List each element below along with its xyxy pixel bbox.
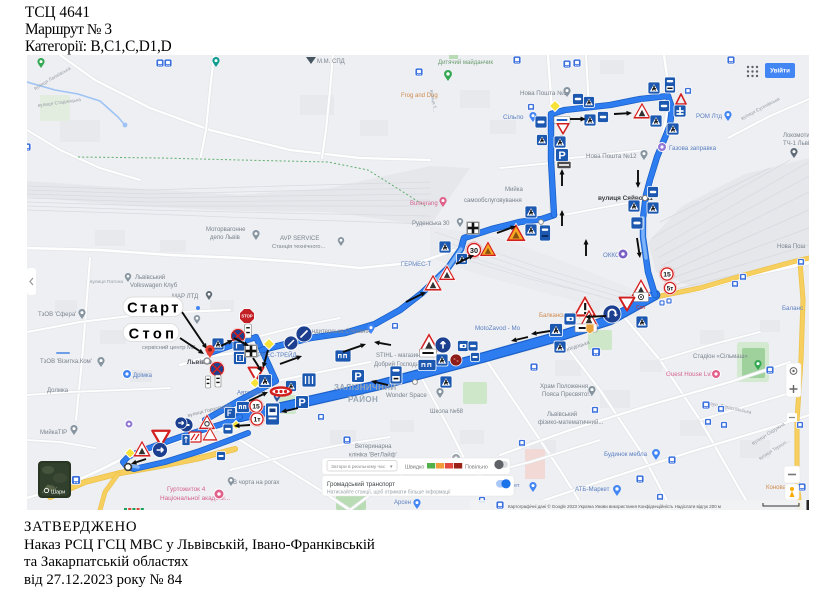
- svg-text:клініка 'ВетЛайф': клініка 'ВетЛайф': [349, 452, 397, 459]
- svg-text:Нова Пошта №12: Нова Пошта №12: [586, 153, 637, 160]
- svg-text:Громадський транспорт: Громадський транспорт: [327, 481, 395, 488]
- svg-text:Гуртожиток 4: Гуртожиток 4: [167, 486, 206, 493]
- svg-text:Стадіон «Сільмаш»: Стадіон «Сільмаш»: [693, 354, 748, 360]
- svg-text:STIHL - магазин: STIHL - магазин: [376, 353, 420, 359]
- svg-text:P: P: [298, 397, 305, 409]
- svg-text:5т: 5т: [667, 286, 674, 293]
- svg-text:Увійти: Увійти: [770, 68, 790, 75]
- svg-text:30: 30: [470, 246, 478, 255]
- svg-text:сервісний центр МВ: сервісний центр МВ: [142, 344, 196, 351]
- svg-text:РОМ Лтд: РОМ Лтд: [696, 113, 722, 120]
- svg-text:ТзОВ 'Візитка.Ком': ТзОВ 'Візитка.Ком': [40, 359, 92, 365]
- svg-text:Мийка: Мийка: [505, 186, 523, 193]
- svg-text:Моторвагонне: Моторвагонне: [206, 227, 246, 233]
- svg-text:Руденська 30: Руденська 30: [412, 221, 450, 227]
- svg-text:Газова заправка: Газова заправка: [669, 145, 717, 152]
- svg-text:Храм Положення: Храм Положення: [540, 384, 588, 390]
- svg-text:Львівський: Львівський: [135, 274, 165, 281]
- svg-text:В чорта на рогах: В чорта на рогах: [233, 480, 279, 486]
- svg-text:Соп: Соп: [636, 305, 645, 311]
- svg-text:Швидко: Швидко: [405, 465, 424, 471]
- svg-text:Картографічні дані © Google 20: Картографічні дані © Google 2023 Україна…: [508, 504, 721, 509]
- svg-text:самообслуговування: самообслуговування: [464, 198, 522, 204]
- svg-text:Старт: Старт: [127, 301, 181, 317]
- svg-text:P: P: [354, 371, 361, 383]
- svg-text:Пояса Пресвято!..: Пояса Пресвято!..: [542, 392, 593, 398]
- svg-text:ТЧ-1 Льві: ТЧ-1 Льві: [783, 141, 809, 147]
- svg-text:МийкаТІР: МийкаТІР: [40, 429, 67, 436]
- svg-text:Долмка: Долмка: [47, 388, 69, 394]
- svg-text:депо Львів: депо Львів: [210, 235, 240, 241]
- svg-text:Будинок мебла: Будинок мебла: [604, 451, 648, 458]
- svg-text:Дитячий майданчик: Дитячий майданчик: [438, 59, 493, 66]
- svg-text:М.М. СПД: М.М. СПД: [317, 59, 345, 65]
- svg-text:РАЙОН: РАЙОН: [348, 395, 378, 404]
- svg-text:Ветеринарна: Ветеринарна: [355, 444, 392, 450]
- svg-text:Натискайте станції, щоб отрима: Натискайте станції, щоб отримати більше …: [327, 489, 451, 496]
- svg-text:ТзОВ 'Сфера': ТзОВ 'Сфера': [38, 312, 76, 318]
- svg-text:Дрімка: Дрімка: [133, 373, 153, 379]
- svg-text:Wonder Space: Wonder Space: [386, 392, 427, 399]
- svg-text:Bumerang: Bumerang: [410, 201, 438, 207]
- svg-text:Volkswagen Клуб: Volkswagen Клуб: [130, 283, 178, 289]
- svg-text:AVP SERVICE: AVP SERVICE: [280, 236, 319, 242]
- svg-text:Guest House Lviv: Guest House Lviv: [666, 371, 716, 378]
- svg-text:Стоп: Стоп: [129, 327, 178, 343]
- svg-text:Сільпо: Сільпо: [503, 113, 524, 121]
- svg-text:MotoZavod - Мо: MotoZavod - Мо: [475, 325, 521, 332]
- svg-text:Шари: Шари: [51, 490, 65, 496]
- svg-text:Затори в реальному час: Затори в реальному час: [331, 464, 386, 470]
- svg-text:Львівський: Львівський: [547, 411, 577, 418]
- svg-text:15: 15: [663, 272, 671, 279]
- svg-text:Конова: Конова: [766, 485, 787, 491]
- svg-text:STOP: STOP: [241, 314, 252, 319]
- svg-text:фізико-математичний...: фізико-математичний...: [538, 419, 604, 426]
- svg-text:Локомоти: Локомоти: [783, 133, 809, 139]
- svg-text:P: P: [558, 150, 565, 162]
- svg-text:15: 15: [252, 404, 260, 411]
- svg-text:1т: 1т: [253, 417, 261, 424]
- svg-text:Школа №68: Школа №68: [430, 408, 464, 415]
- svg-text:Повільно: Повільно: [465, 465, 488, 471]
- svg-text:Нова Пош: Нова Пош: [777, 244, 805, 250]
- svg-text:Станція технічного...: Станція технічного...: [272, 244, 326, 250]
- svg-text:Кондитерська Степанія: Кондитерська Степанія: [305, 329, 370, 335]
- svg-text:Баланс: Баланс: [782, 305, 803, 312]
- svg-text:АТБ-Маркет: АТБ-Маркет: [575, 486, 610, 493]
- svg-text:Арсен: Арсен: [394, 500, 411, 506]
- svg-text:ОККО: ОККО: [603, 252, 620, 259]
- svg-text:ГЕРМЕС-Т: ГЕРМЕС-Т: [401, 262, 432, 268]
- svg-text:вулиця Патона: вулиця Патона: [90, 279, 123, 285]
